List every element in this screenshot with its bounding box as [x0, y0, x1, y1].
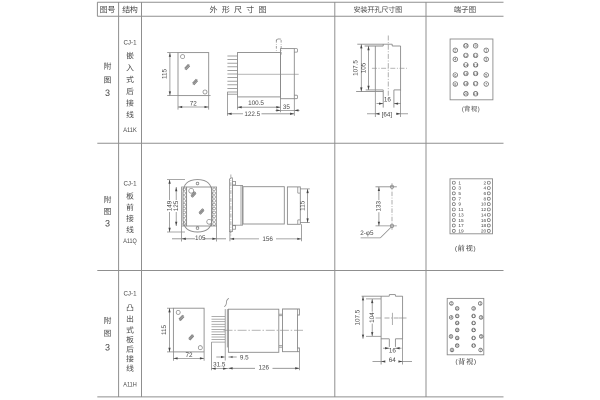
svg-text:7: 7	[458, 196, 461, 202]
svg-text:8: 8	[484, 196, 487, 202]
svg-text:133: 133	[376, 200, 383, 211]
svg-text:1: 1	[479, 302, 481, 306]
svg-text:16: 16	[464, 71, 468, 76]
svg-text:): )	[474, 359, 476, 366]
svg-text:5: 5	[485, 72, 487, 77]
svg-text:17: 17	[473, 81, 477, 86]
svg-text:15: 15	[473, 71, 477, 76]
svg-text:6: 6	[484, 191, 487, 197]
svg-text:1: 1	[458, 180, 461, 186]
svg-text:16: 16	[389, 348, 397, 355]
svg-text:16: 16	[481, 218, 487, 224]
svg-text:CJ-1: CJ-1	[123, 291, 137, 298]
svg-text:10: 10	[481, 202, 487, 208]
svg-text:6: 6	[454, 72, 456, 77]
svg-text:20: 20	[481, 228, 487, 234]
svg-text:18: 18	[455, 336, 459, 340]
svg-text:): )	[478, 106, 480, 113]
svg-text:19: 19	[458, 228, 464, 234]
svg-text:3: 3	[458, 186, 461, 192]
svg-text:10: 10	[455, 307, 459, 311]
svg-text:115: 115	[300, 200, 307, 211]
svg-text:): )	[473, 245, 475, 252]
svg-text:156: 156	[262, 236, 273, 243]
svg-text:11: 11	[472, 314, 476, 318]
svg-text:A11Q: A11Q	[123, 238, 137, 245]
svg-text:15: 15	[472, 328, 476, 332]
svg-text:9.5: 9.5	[240, 354, 249, 361]
svg-text:12: 12	[455, 314, 459, 318]
svg-text:9: 9	[475, 43, 477, 48]
svg-text:CJ-1: CJ-1	[123, 180, 137, 187]
svg-text:104: 104	[369, 312, 376, 323]
svg-text:2: 2	[484, 180, 487, 186]
svg-text:3: 3	[485, 57, 487, 62]
svg-text:8: 8	[454, 81, 456, 86]
svg-text:3: 3	[105, 218, 110, 228]
svg-text:5: 5	[458, 191, 461, 197]
svg-text:20: 20	[455, 344, 459, 348]
svg-text:13: 13	[458, 212, 464, 218]
svg-text:100.5: 100.5	[248, 100, 264, 107]
svg-text:11: 11	[474, 53, 478, 58]
svg-text:2: 2	[450, 302, 452, 306]
svg-text:4: 4	[450, 316, 452, 320]
svg-text:122.5: 122.5	[244, 111, 260, 118]
svg-text:6: 6	[450, 335, 452, 339]
svg-text:17: 17	[458, 223, 464, 229]
svg-text:[64]: [64]	[382, 111, 393, 118]
svg-text:72: 72	[185, 352, 193, 359]
svg-text:3: 3	[480, 316, 482, 320]
svg-text:35: 35	[283, 104, 291, 111]
svg-text:19: 19	[472, 344, 476, 348]
svg-text:4: 4	[484, 186, 487, 192]
svg-text:18: 18	[464, 81, 468, 86]
svg-text:15: 15	[458, 218, 464, 224]
svg-text:A11K: A11K	[123, 127, 137, 134]
svg-text:13: 13	[472, 321, 476, 325]
svg-text:107.5: 107.5	[353, 60, 360, 76]
svg-text:19: 19	[473, 91, 477, 96]
svg-text:125: 125	[173, 200, 180, 211]
svg-text:8: 8	[451, 348, 453, 352]
svg-text:1: 1	[485, 48, 487, 53]
svg-text:9: 9	[473, 307, 475, 311]
svg-text:105: 105	[195, 235, 206, 242]
svg-text:13: 13	[473, 62, 477, 67]
svg-text:18: 18	[481, 223, 487, 229]
svg-text:5: 5	[480, 335, 482, 339]
svg-text:7: 7	[480, 348, 482, 352]
svg-text:CJ-1: CJ-1	[123, 39, 137, 46]
svg-text:64: 64	[389, 357, 397, 364]
svg-text:16: 16	[455, 328, 459, 332]
svg-text:14: 14	[481, 212, 487, 218]
svg-text:2-φ5: 2-φ5	[360, 230, 374, 237]
svg-text:12: 12	[481, 207, 487, 213]
svg-text:115: 115	[161, 68, 168, 79]
svg-text:2: 2	[454, 48, 456, 53]
svg-text:107.5: 107.5	[354, 309, 361, 325]
svg-text:105: 105	[360, 62, 367, 73]
svg-text:31.5: 31.5	[213, 361, 226, 368]
svg-text:3: 3	[105, 343, 110, 353]
svg-text:A11H: A11H	[123, 381, 137, 388]
svg-text:17: 17	[472, 336, 476, 340]
svg-text:115: 115	[161, 324, 168, 335]
svg-text:126: 126	[259, 365, 270, 372]
svg-text:7: 7	[485, 81, 487, 86]
svg-text:9: 9	[458, 202, 461, 208]
svg-text:72: 72	[190, 101, 198, 108]
svg-text:16: 16	[384, 96, 392, 103]
svg-text:3: 3	[105, 88, 110, 98]
svg-text:11: 11	[458, 207, 463, 213]
svg-text:12: 12	[464, 53, 468, 58]
svg-text:14: 14	[455, 321, 459, 325]
